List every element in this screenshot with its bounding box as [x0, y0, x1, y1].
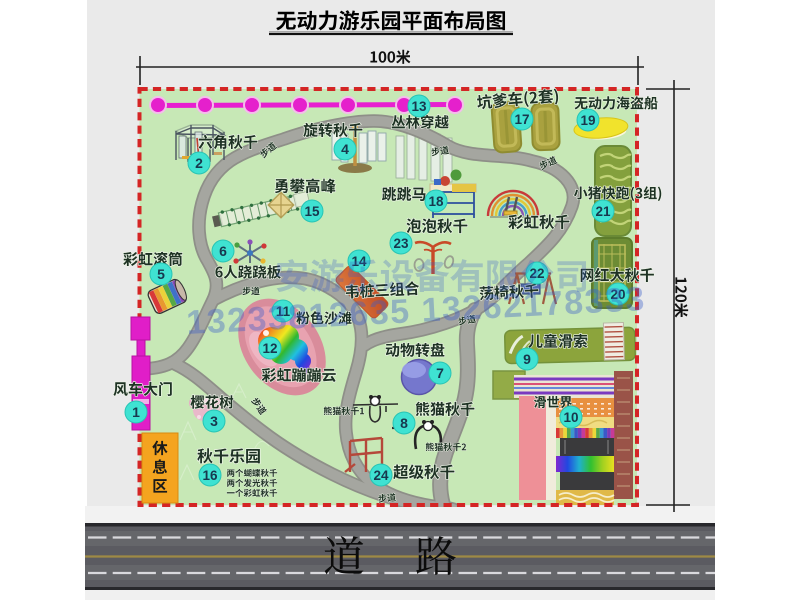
svg-text:24: 24 [373, 468, 389, 483]
svg-text:18: 18 [428, 194, 444, 209]
svg-text:9: 9 [523, 351, 531, 367]
svg-text:3: 3 [210, 413, 218, 429]
svg-text:16: 16 [202, 468, 218, 483]
svg-text:21: 21 [595, 204, 611, 219]
svg-text:1: 1 [132, 404, 140, 420]
svg-text:2: 2 [195, 155, 203, 171]
svg-text:13: 13 [411, 99, 427, 114]
svg-text:10: 10 [563, 410, 578, 425]
svg-text:15: 15 [304, 204, 320, 219]
svg-text:23: 23 [393, 236, 409, 251]
svg-text:6: 6 [219, 243, 227, 259]
svg-text:12: 12 [262, 341, 277, 356]
svg-text:4: 4 [341, 141, 349, 157]
svg-text:19: 19 [580, 113, 595, 128]
svg-text:8: 8 [400, 415, 408, 431]
svg-text:5: 5 [157, 266, 165, 282]
svg-text:7: 7 [436, 365, 444, 381]
svg-text:17: 17 [514, 112, 529, 127]
